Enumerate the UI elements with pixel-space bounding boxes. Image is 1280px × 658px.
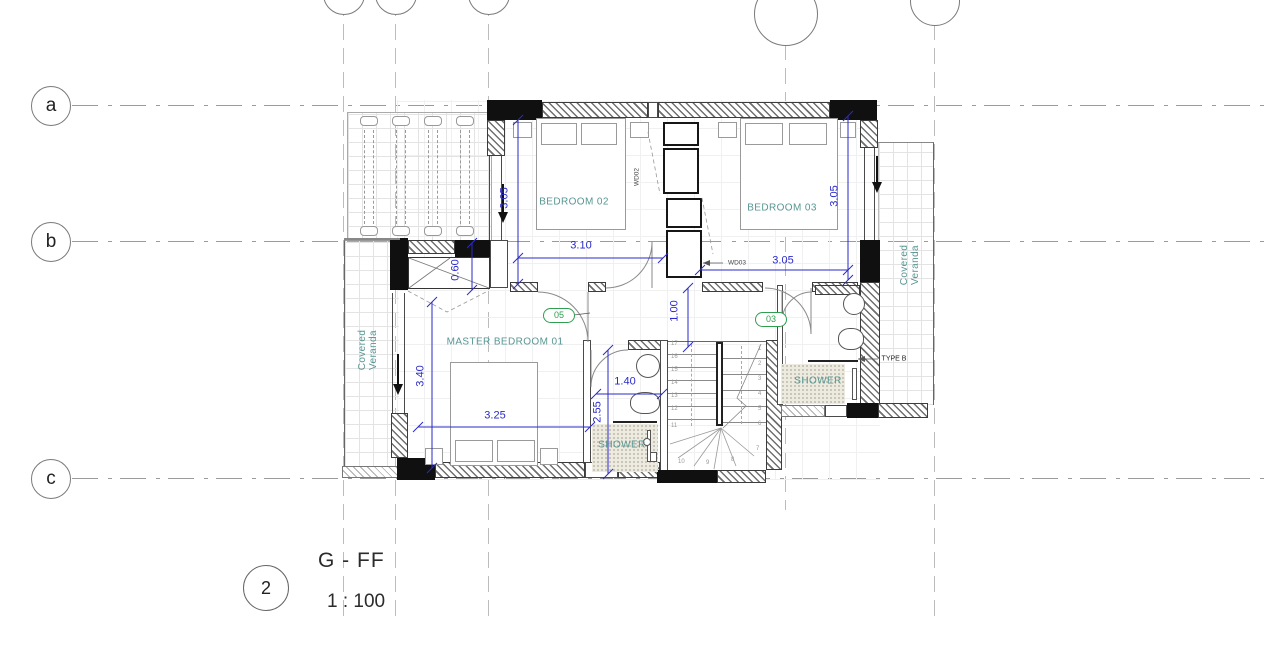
- dim-master-depth: 3.40: [416, 365, 427, 386]
- dim-bedroom02-depth: 3.05: [500, 187, 511, 208]
- door-tag-03: 03: [755, 312, 787, 327]
- dim-ensuite-depth: 2.55: [593, 401, 604, 422]
- stair-num: 12: [671, 406, 678, 412]
- dim-master-width: 3.25: [484, 411, 505, 422]
- dim-bedroom02-width: 3.10: [570, 241, 591, 252]
- stair-num: 8: [731, 457, 734, 463]
- annotation-type-b: TYPE B: [882, 356, 907, 363]
- stair-num: 4: [758, 391, 761, 397]
- grid-bubble-col3: [468, 0, 510, 15]
- wc-shower2: [838, 328, 864, 350]
- dim-corridor: 1.00: [670, 300, 681, 321]
- room-label-veranda-left: CoveredVeranda: [357, 330, 379, 371]
- sink-ensuite: [636, 354, 660, 378]
- grid-bubble-b: b: [31, 222, 71, 262]
- annotation-wd03: WD03: [728, 260, 746, 267]
- grid-bubble-col2: [375, 0, 417, 15]
- room-label-master-bedroom: MASTER BEDROOM 01: [447, 337, 564, 348]
- room-label-shower2: SHOWER: [794, 376, 841, 387]
- grid-bubble-col4: [754, 0, 818, 46]
- stair-num: 7: [756, 446, 759, 452]
- stair-num: 1: [758, 346, 761, 352]
- stair-num: 9: [706, 460, 709, 466]
- dim-ensuite-width: 1.40: [614, 377, 635, 388]
- view-scale: 1 : 100: [327, 591, 385, 613]
- dim-bedroom03-width: 3.05: [772, 256, 793, 267]
- stair-num: 5: [758, 406, 761, 412]
- grid-bubble-c: c: [31, 459, 71, 499]
- stair-num: 14: [671, 380, 678, 386]
- dim-entry-closet: 0.60: [451, 259, 462, 280]
- view-detail-number: 2: [243, 565, 289, 611]
- stair-num: 13: [671, 393, 678, 399]
- grid-bubble-a: a: [31, 86, 71, 126]
- stair-num: 10: [678, 459, 685, 465]
- stair-num: 2: [758, 361, 761, 367]
- room-label-shower-ensuite: SHOWER: [598, 440, 645, 451]
- annotation-wd02: WD02: [634, 168, 641, 186]
- room-label-bedroom02: BEDROOM 02: [539, 197, 609, 208]
- grid-bubble-col5: [910, 0, 960, 26]
- room-label-veranda-right: CoveredVeranda: [899, 245, 921, 286]
- sink-shower2: [843, 293, 865, 315]
- dim-bedroom03-depth: 3.05: [830, 185, 841, 206]
- stair-num: 3: [758, 376, 761, 382]
- room-label-bedroom03: BEDROOM 03: [747, 203, 817, 214]
- floor-plan-sheet: 17 16 15 14 13 12 11 1 2 3 4 5 6 7 10 9 …: [0, 0, 1280, 658]
- stair-num: 6: [758, 421, 761, 427]
- stair-num: 17: [671, 341, 678, 347]
- door-tag-05: 05: [543, 308, 575, 323]
- grid-bubble-col1: [323, 0, 365, 15]
- view-title: G - FF: [318, 549, 385, 573]
- stair-num: 11: [671, 423, 677, 429]
- stair-num: 16: [671, 354, 678, 360]
- stair-num: 15: [671, 367, 678, 373]
- grid-line-col-5: [934, 24, 935, 620]
- wc-ensuite: [630, 392, 660, 414]
